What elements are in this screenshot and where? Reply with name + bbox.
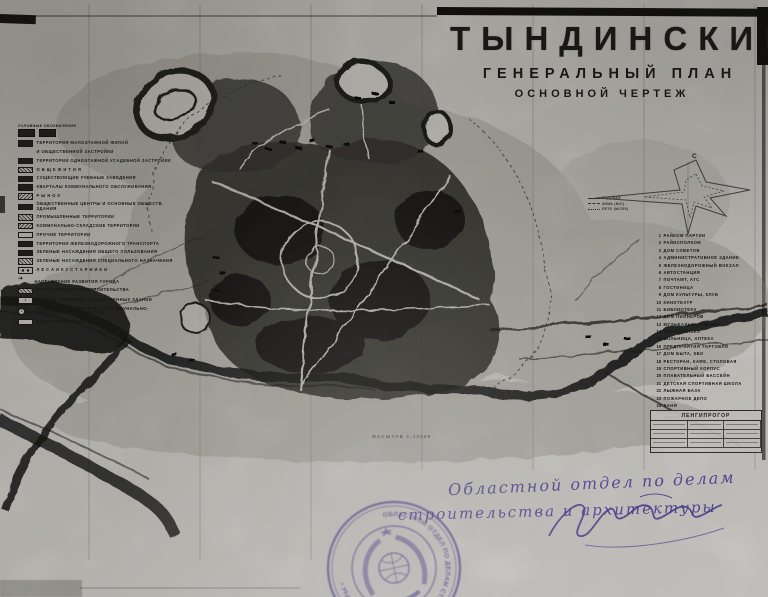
- legend-item-label: КОММУНАЛЬНО-СКЛАДСКИЕ ТЕРРИТОРИИ: [37, 224, 140, 229]
- building-index-item: 4 АДМИНИСТРАТИВНОЕ ЗДАНИЕ: [653, 255, 765, 261]
- title-block-row: [651, 421, 761, 430]
- legend-swatch: [18, 176, 33, 183]
- building-label: ДОМ ПИОНЕРОВ: [664, 315, 704, 320]
- legend-swatch: [18, 267, 33, 274]
- legend-item: ПРОМЫШЛЕННЫЕ ТЕРРИТОРИИ: [18, 214, 176, 221]
- building-number: 24: [653, 403, 661, 408]
- legend-item: О Б Щ Е Ж И Т И Я: [18, 167, 176, 174]
- building-number: 11: [653, 307, 661, 312]
- legend-item-label: НОМЕРА ОСНОВНЫХ ОБЩЕСТВЕННЫХ ЗДАНИЙ: [37, 298, 153, 303]
- legend-swatch: [18, 158, 33, 165]
- building-number: 21: [653, 381, 661, 386]
- building-number: 17: [653, 351, 661, 356]
- legend-item-label: ТЕРРИТОРИИ ЖЕЛЕЗНОДОРОЖНОГО ТРАНСПОРТА: [37, 242, 160, 247]
- legend-header-swatches: [18, 129, 176, 137]
- legend-item-label: ПРОМЫШЛЕННЫЕ ТЕРРИТОРИИ: [37, 215, 115, 220]
- building-label: АДМИНИСТРАТИВНОЕ ЗДАНИЕ: [664, 256, 740, 261]
- building-label: ДОМ БЫТА, КБО: [664, 352, 704, 357]
- legend-item-label: САНИТАРНО-ЗАЩИТНАЯ ЗОНА: [37, 320, 111, 325]
- legend-swatch: [18, 214, 33, 221]
- building-index-item: 8 ГОСТИНИЦА: [653, 285, 765, 291]
- line-style-sample: [588, 209, 600, 210]
- building-number: 4: [653, 255, 661, 260]
- legend-item-label: ПРОЧИЕ ТЕРРИТОРИИ: [37, 233, 91, 238]
- legend-item-label: СУЩЕСТВУЮЩИЕ УЧЕБНЫЕ ЗАВЕДЕНИЯ: [37, 176, 136, 181]
- institute-name: ЛЕНГИПРОГОР: [651, 411, 761, 421]
- legend-item-label: ТЕРРИТОРИИ ОДНОЭТАЖНОЙ УСАДЕБНОЙ ЗАСТРОЙ…: [37, 159, 171, 164]
- wind-rose-legend-label: ГОДОВАЯ: [602, 196, 621, 200]
- legend-swatch: [18, 184, 33, 191]
- building-index-item: 5 ЖЕЛЕЗНОДОРОЖНЫЙ ВОКЗАЛ: [653, 263, 765, 269]
- map-title: ТЫНДИНСКИЙ: [450, 20, 768, 58]
- building-label: ПОЛИКЛИНИКА: [664, 330, 701, 335]
- legend-item-label: ЗОНА ЗАПРЕЩЕНИЯ СТРОИТЕЛЬСТВА: [37, 288, 130, 293]
- building-label: КИНОТЕАТР: [664, 301, 693, 306]
- legend-item: НОМЕРА ОСНОВНЫХ ОБЩЕСТВЕННЫХ ЗДАНИЙ: [18, 297, 176, 304]
- building-number: 14: [653, 329, 661, 334]
- legend-item: ЗЕЛЕНЫЕ НАСАЖДЕНИЯ ОБЩЕГО ПОЛЬЗОВАНИЯ: [18, 250, 176, 257]
- title-block-row: [651, 439, 761, 448]
- building-label: БИБЛИОТЕКА: [664, 308, 697, 313]
- wind-rose-legend-label: ЛЕТО (М/СЕК): [602, 207, 629, 211]
- wind-rose-legend-label: ЗИМА (М/С): [602, 202, 624, 206]
- legend-item: НАПРАВЛЕНИЕ РАЗВИТИЯ ГОРОДА: [18, 280, 176, 285]
- building-index-item: 13 МУЗЫКАЛЬНАЯ ШКОЛА: [653, 322, 765, 328]
- building-number: 3: [653, 248, 661, 253]
- building-number: 6: [653, 270, 661, 275]
- legend-item-label: О Б Щ Е Ж И Т И Я: [37, 168, 82, 173]
- building-number: 23: [653, 396, 661, 401]
- building-label: АВТОСТАНЦИЯ: [664, 271, 701, 276]
- building-label: ГОСТИНИЦА: [664, 286, 694, 291]
- legend-item-label: Р Ы Н О К: [37, 194, 61, 199]
- legend-list: ТЕРРИТОРИЯ МАЛОЭТАЖНОЙ ЖИЛОЙ И ОБЩЕСТВЕН…: [18, 140, 176, 274]
- building-label: ЖЕЛЕЗНОДОРОЖНЫЙ ВОКЗАЛ: [664, 264, 739, 269]
- building-index-item: 20 ПЛАВАТЕЛЬНЫЙ БАССЕЙН: [653, 373, 765, 379]
- building-number: 20: [653, 373, 661, 378]
- legend-item: ЗЕЛЕНЫЕ НАСАЖДЕНИЯ СПЕЦИАЛЬНОГО НАЗНАЧЕН…: [18, 258, 176, 265]
- building-index-item: 3 ДОМ СОВЕТОВ: [653, 248, 765, 254]
- line-style-sample: [588, 203, 600, 204]
- building-index: 1 РАЙКОМ ПАРТИИ 2 РАЙИСПОЛКОМ 3 ДОМ СОВЕ…: [653, 233, 765, 422]
- building-index-item: 21 ДЕТСКАЯ СПОРТИВНАЯ ШКОЛА: [653, 381, 765, 387]
- wind-rose-legend: ГОДОВАЯ ЗИМА (М/С) ЛЕТО (М/СЕК): [588, 196, 668, 213]
- legend-swatch: [18, 223, 33, 230]
- building-number: 15: [653, 336, 661, 341]
- building-index-item: 14 ПОЛИКЛИНИКА: [653, 329, 765, 335]
- building-number: 7: [653, 277, 661, 282]
- building-label: ПРЕДПРИЯТИЯ ТОРГОВЛИ: [664, 345, 729, 350]
- legend-item: САНИТАРНО-ЗАЩИТНАЯ ЗОНА: [18, 319, 176, 326]
- building-label: БАНЯ: [664, 404, 678, 409]
- building-number: 13: [653, 322, 661, 327]
- building-label: БОЛЬНИЦА, АПТЕКА: [664, 337, 715, 342]
- legend-swatch: [18, 280, 31, 285]
- building-index-item: 19 СПОРТИВНЫЙ КОРПУС: [653, 366, 765, 372]
- legend-item: ТЕРРИТОРИИ ОДНОЭТАЖНОЙ УСАДЕБНОЙ ЗАСТРОЙ…: [18, 158, 176, 165]
- legend-item-label: НОМЕРА ПРОМЫШЛЕННЫХ И КОММУНАЛЬНО-СКЛАДС…: [37, 307, 177, 316]
- line-style-sample: [588, 198, 600, 199]
- drawing-type-label: ОСНОВНОЙ ЧЕРТЕЖ: [452, 88, 752, 100]
- legend-swatch: [18, 241, 33, 248]
- legend-item: СУЩЕСТВУЮЩИЕ УЧЕБНЫЕ ЗАВЕДЕНИЯ: [18, 176, 176, 183]
- building-index-item: 23 ПОЖАРНОЕ ДЕПО: [653, 396, 765, 402]
- title-block: ЛЕНГИПРОГОР: [650, 410, 762, 453]
- building-label: ДОМ СОВЕТОВ: [664, 249, 700, 254]
- building-index-item: 17 ДОМ БЫТА, КБО: [653, 351, 765, 357]
- building-index-item: 11 БИБЛИОТЕКА: [653, 307, 765, 313]
- map-subtitle: ГЕНЕРАЛЬНЫЙ ПЛАН: [452, 66, 768, 82]
- building-label: ЛЫЖНАЯ БАЗА: [664, 389, 701, 394]
- building-label: СПОРТИВНЫЙ КОРПУС: [664, 367, 721, 372]
- building-label: ДОМ КУЛЬТУРЫ, КЛУБ: [664, 293, 719, 298]
- north-label: С: [692, 153, 697, 160]
- legend-item-label: И ОБЩЕСТВЕННОЙ ЗАСТРОЙКИ: [37, 150, 114, 155]
- legend-item: Л Е С А И К У С Т А Р Н И К И: [18, 267, 176, 274]
- wind-rose-legend-item: ГОДОВАЯ: [588, 196, 668, 200]
- building-index-item: 12 ДОМ ПИОНЕРОВ: [653, 314, 765, 320]
- building-index-item: 2 РАЙИСПОЛКОМ: [653, 240, 765, 246]
- building-number: 12: [653, 314, 661, 319]
- legend-item: НОМЕРА ПРОМЫШЛЕННЫХ И КОММУНАЛЬНО-СКЛАДС…: [18, 307, 176, 316]
- building-number: 9: [653, 292, 661, 297]
- building-label: ПОЖАРНОЕ ДЕПО: [664, 397, 708, 402]
- legend-swatch: [18, 308, 25, 315]
- building-index-item: 22 ЛЫЖНАЯ БАЗА: [653, 388, 765, 394]
- building-label: РАЙИСПОЛКОМ: [664, 241, 702, 246]
- legend-item-label: Л Е С А И К У С Т А Р Н И К И: [37, 268, 108, 273]
- legend-item: Р Ы Н О К: [18, 193, 176, 200]
- legend-item-label: ЗЕЛЕНЫЕ НАСАЖДЕНИЯ ОБЩЕГО ПОЛЬЗОВАНИЯ: [37, 250, 158, 255]
- building-number: 10: [653, 300, 661, 305]
- legend-swatch: [18, 140, 33, 147]
- legend-swatch: [18, 319, 33, 326]
- legend-list-2: НАПРАВЛЕНИЕ РАЗВИТИЯ ГОРОДА ЗОНА ЗАПРЕЩЕ…: [18, 280, 176, 326]
- legend-swatch: [18, 250, 33, 257]
- building-index-item: 6 АВТОСТАНЦИЯ: [653, 270, 765, 276]
- stamp-emblem: [357, 522, 430, 597]
- title-block-row: [651, 430, 761, 439]
- legend-item: КОММУНАЛЬНО-СКЛАДСКИЕ ТЕРРИТОРИИ: [18, 223, 176, 230]
- building-number: 19: [653, 366, 661, 371]
- building-label: РЕСТОРАН, КАФЕ, СТОЛОВАЯ: [664, 360, 737, 365]
- legend-swatch: [18, 167, 33, 174]
- building-number: 1: [653, 233, 661, 238]
- building-index-item: 10 КИНОТЕАТР: [653, 300, 765, 306]
- building-label: ПОЧТАМТ, АТС: [664, 278, 700, 283]
- legend-swatch: [18, 288, 33, 295]
- legend-item: ЗОНА ЗАПРЕЩЕНИЯ СТРОИТЕЛЬСТВА: [18, 288, 176, 295]
- legend-item: ТЕРРИТОРИЯ МАЛОЭТАЖНОЙ ЖИЛОЙ: [18, 140, 176, 147]
- legend-swatch: [18, 204, 33, 211]
- building-label: ПЛАВАТЕЛЬНЫЙ БАССЕЙН: [664, 374, 731, 379]
- building-index-item: 7 ПОЧТАМТ, АТС: [653, 277, 765, 283]
- building-index-item: 18 РЕСТОРАН, КАФЕ, СТОЛОВАЯ: [653, 359, 765, 365]
- legend-item-label: НАПРАВЛЕНИЕ РАЗВИТИЯ ГОРОДА: [35, 280, 120, 285]
- legend-swatch: [18, 297, 33, 304]
- legend-item: ТЕРРИТОРИИ ЖЕЛЕЗНОДОРОЖНОГО ТРАНСПОРТА: [18, 241, 176, 248]
- building-index-item: 24 БАНЯ: [653, 403, 765, 409]
- legend-item: И ОБЩЕСТВЕННОЙ ЗАСТРОЙКИ: [18, 149, 176, 156]
- legend-item-label: КВАРТАЛЫ КОММУНАЛЬНОГО ОБСЛУЖИВАНИЯ: [37, 185, 152, 190]
- legend-item-label: ЗЕЛЕНЫЕ НАСАЖДЕНИЯ СПЕЦИАЛЬНОГО НАЗНАЧЕН…: [37, 259, 173, 264]
- building-number: 16: [653, 344, 661, 349]
- wind-rose-legend-item: ЛЕТО (М/СЕК): [588, 207, 668, 211]
- building-label: МУЗЫКАЛЬНАЯ ШКОЛА: [664, 323, 722, 328]
- legend-item: ОБЩЕСТВЕННЫЕ ЦЕНТРЫ И ОСНОВНЫЕ ОБЩЕСТВ. …: [18, 202, 176, 211]
- legend-item: ПРОЧИЕ ТЕРРИТОРИИ: [18, 232, 176, 239]
- legend-swatch: [18, 193, 33, 200]
- building-index-item: 1 РАЙКОМ ПАРТИИ: [653, 233, 765, 239]
- legend-item: КВАРТАЛЫ КОММУНАЛЬНОГО ОБСЛУЖИВАНИЯ: [18, 184, 176, 191]
- building-number: 2: [653, 240, 661, 245]
- building-label: ДЕТСКАЯ СПОРТИВНАЯ ШКОЛА: [664, 382, 742, 387]
- legend-header: УСЛОВНЫЕ ОБОЗНАЧЕНИЯ: [18, 124, 176, 128]
- building-index-item: 15 БОЛЬНИЦА, АПТЕКА: [653, 336, 765, 342]
- legend-swatch: [18, 258, 33, 265]
- scale-note: МАСШТАБ 1:10000: [372, 434, 431, 439]
- building-index-item: 16 ПРЕДПРИЯТИЯ ТОРГОВЛИ: [653, 344, 765, 350]
- legend-item-label: ТЕРРИТОРИЯ МАЛОЭТАЖНОЙ ЖИЛОЙ: [37, 141, 129, 146]
- building-number: 22: [653, 388, 661, 393]
- legend-item-label: ОБЩЕСТВЕННЫЕ ЦЕНТРЫ И ОСНОВНЫЕ ОБЩЕСТВ. …: [37, 202, 177, 211]
- building-number: 18: [653, 359, 661, 364]
- map-legend: УСЛОВНЫЕ ОБОЗНАЧЕНИЯ ТЕРРИТОРИЯ МАЛОЭТАЖ…: [18, 124, 176, 328]
- legend-swatch: [18, 232, 33, 239]
- building-number: 8: [653, 285, 661, 290]
- building-number: 5: [653, 263, 661, 268]
- scanned-map-document: С ОБЛАСТНОЙ ОТДЕЛ ПО ДЕЛАМ СТРОИТЕЛЬСТВА…: [0, 0, 768, 597]
- building-label: РАЙКОМ ПАРТИИ: [664, 234, 706, 239]
- wind-rose-legend-item: ЗИМА (М/С): [588, 202, 668, 206]
- building-index-item: 9 ДОМ КУЛЬТУРЫ, КЛУБ: [653, 292, 765, 298]
